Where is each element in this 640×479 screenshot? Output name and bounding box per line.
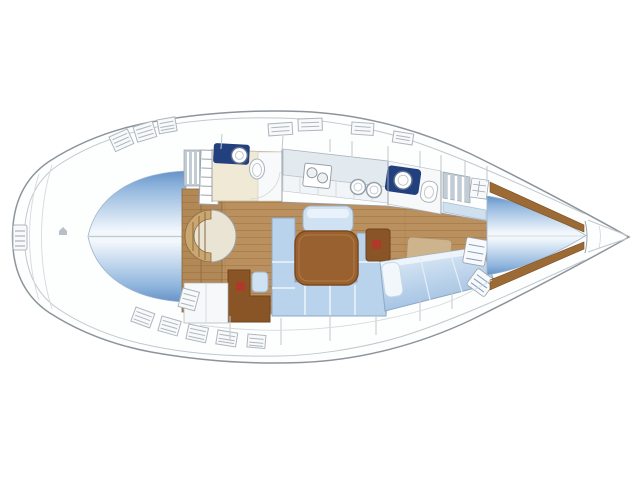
louver-panel — [184, 150, 200, 186]
aft-head-toilet — [250, 159, 265, 179]
heater-locker — [366, 229, 390, 261]
port-bench — [303, 206, 353, 233]
aft-head-vanity — [213, 143, 250, 165]
wardrobe-grid-box — [469, 178, 488, 199]
louver-locker — [443, 172, 470, 203]
nav-station — [228, 270, 270, 322]
swim-ladder — [13, 225, 27, 250]
forward-wardrobe — [443, 172, 489, 220]
aft-head — [212, 143, 282, 201]
yacht-floorplan-page — [0, 0, 640, 479]
stove — [303, 163, 332, 189]
forward-head-vanity — [384, 165, 421, 195]
nav-red-panel — [236, 282, 245, 291]
nav-seat — [252, 272, 268, 292]
dresser-drawers-upper — [462, 237, 488, 266]
floor-plan-canvas — [0, 0, 640, 479]
curved-seat — [185, 210, 236, 262]
saloon-table — [295, 231, 358, 285]
